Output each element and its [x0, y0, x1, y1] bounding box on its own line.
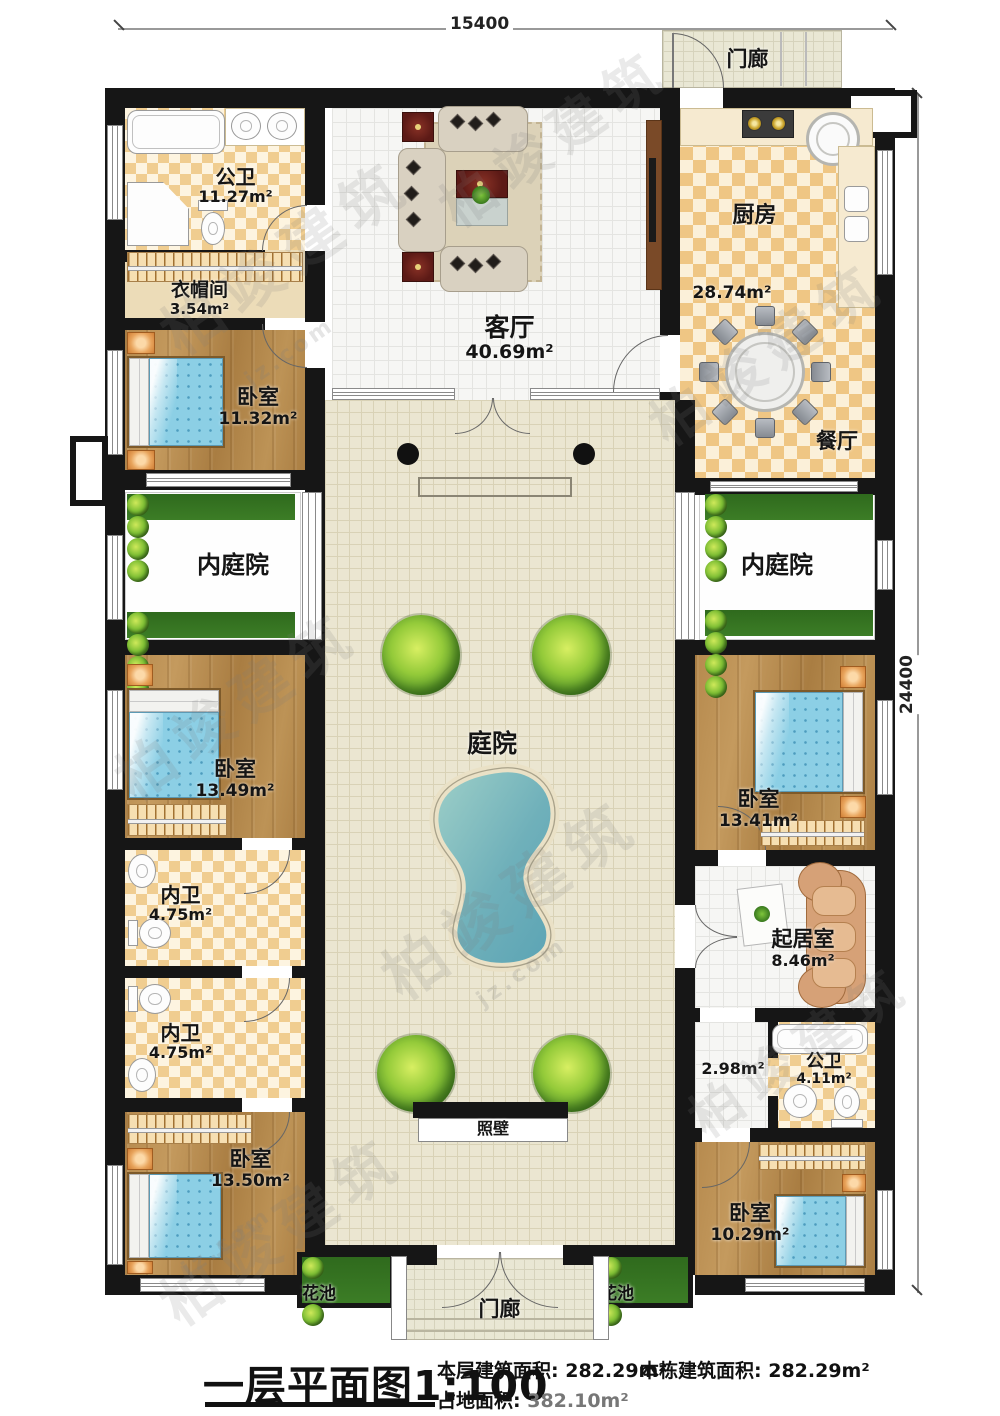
- porch-step-line: [407, 1330, 593, 1332]
- plant-icon: [127, 516, 149, 538]
- room-name: 内卫: [133, 1022, 228, 1044]
- room-label: 门廊: [452, 1298, 547, 1322]
- plant-icon: [705, 610, 727, 632]
- door-leaf: [672, 33, 674, 88]
- dimension-right-label: 24400: [893, 655, 921, 714]
- stat-building-area: 本栋建筑面积: 282.29m²: [640, 1356, 870, 1383]
- chair: [699, 362, 719, 382]
- plant-icon: [127, 612, 149, 634]
- room-name: 客厅: [452, 314, 567, 342]
- tree-icon: [533, 1035, 610, 1112]
- window: [710, 481, 858, 492]
- wardrobe: [127, 1114, 252, 1144]
- room-name: 厨房: [707, 204, 802, 229]
- window: [877, 1190, 893, 1270]
- window: [107, 690, 123, 790]
- room-name: 照壁: [418, 1120, 568, 1138]
- room-name: 公卫: [188, 166, 283, 188]
- room-area: 2.98m²: [698, 1060, 768, 1078]
- door-opening: [242, 838, 292, 850]
- plant-icon: [127, 634, 149, 656]
- window: [140, 1278, 265, 1292]
- toilet-tank: [128, 986, 138, 1012]
- chair: [811, 362, 831, 382]
- chair: [755, 306, 775, 326]
- room-name: 卧室: [700, 1202, 800, 1226]
- room-label: 内卫 4.75m²: [133, 1022, 228, 1062]
- plant-icon: [705, 516, 727, 538]
- sofa: [440, 246, 528, 292]
- toilet: [139, 984, 171, 1014]
- tree-icon: [382, 615, 460, 695]
- room-area: 4.11m²: [778, 1072, 870, 1088]
- plant-icon: [754, 906, 770, 922]
- burner-icon: [771, 116, 786, 131]
- plant-icon: [472, 186, 490, 204]
- room-area: 4.75m²: [133, 1044, 228, 1062]
- stat-label: 占地面积:: [437, 1390, 521, 1412]
- window: [107, 125, 123, 220]
- room-area: 11.27m²: [188, 188, 283, 206]
- room-name: 衣帽间: [152, 280, 247, 301]
- wardrobe: [127, 804, 227, 836]
- plant-icon: [127, 538, 149, 560]
- stat-label: 本栋建筑面积:: [640, 1360, 762, 1382]
- room-label: 门廊: [700, 48, 795, 72]
- room-area: 11.32m²: [208, 410, 308, 429]
- nightstand: [127, 332, 155, 354]
- tree-icon: [377, 1035, 455, 1112]
- room-name: 门廊: [700, 48, 795, 72]
- window: [107, 1165, 123, 1265]
- plant-icon: [705, 632, 727, 654]
- sink: [231, 112, 261, 140]
- toilet: [834, 1086, 860, 1118]
- window: [302, 492, 322, 640]
- nightstand: [127, 1148, 153, 1170]
- room-name: 内卫: [133, 884, 228, 906]
- room-label: 客厅 40.69m²: [452, 314, 567, 363]
- pillows: [129, 358, 149, 446]
- room-label: 卧室 13.41m²: [706, 788, 811, 831]
- room-area: 13.49m²: [185, 782, 285, 801]
- room-name: 餐厅: [792, 430, 882, 454]
- flower-strip: [705, 610, 873, 636]
- room-label: 公卫 11.27m²: [188, 166, 283, 206]
- wall-segment: [125, 640, 305, 655]
- door-opening: [242, 966, 292, 978]
- room-label: 卧室 13.50m²: [198, 1148, 303, 1191]
- sink: [844, 186, 869, 212]
- bathtub: [127, 110, 225, 154]
- sofa: [438, 106, 528, 152]
- flower-bed-label: 花池: [302, 1284, 336, 1304]
- window: [877, 540, 893, 590]
- floor-plan: 15400 24400: [0, 0, 1000, 1416]
- dining-table: [725, 332, 805, 412]
- title-underline: [205, 1402, 435, 1407]
- room-label: 28.74m²: [682, 284, 782, 303]
- room-area: 13.41m²: [706, 812, 811, 831]
- room-area: 4.75m²: [133, 906, 228, 924]
- nightstand: [840, 666, 866, 688]
- door-opening: [675, 905, 695, 968]
- column: [397, 443, 419, 465]
- wall-segment: [105, 88, 680, 108]
- room-name: 卧室: [198, 1148, 303, 1172]
- bathtub: [772, 1024, 868, 1054]
- wardrobe: [758, 1144, 866, 1170]
- dimension-top-label: 15400: [446, 14, 513, 34]
- room-area: 8.46m²: [748, 952, 858, 970]
- porch-column: [593, 1256, 609, 1340]
- porch-divider: [805, 32, 807, 86]
- plant-icon: [127, 560, 149, 582]
- door-opening: [680, 88, 723, 108]
- stat-footprint-area: 占地面积: 382.10m²: [437, 1386, 629, 1413]
- room-name: 卧室: [706, 788, 811, 812]
- wall-segment: [305, 108, 325, 1275]
- room-label: 厨房: [707, 204, 802, 229]
- room-name: 卧室: [208, 386, 308, 410]
- window: [877, 700, 893, 795]
- mattress: [755, 692, 843, 792]
- room-name: 卧室: [185, 758, 285, 782]
- tree-icon: [532, 615, 610, 695]
- flower-bed: 花池: [595, 1252, 693, 1308]
- plant-icon: [705, 494, 727, 516]
- room-label: 卧室 10.29m²: [700, 1202, 800, 1245]
- door-opening: [702, 1128, 750, 1142]
- cushion: [812, 886, 856, 916]
- plant-icon: [705, 654, 727, 676]
- end-table: [402, 112, 434, 142]
- sink: [844, 216, 869, 242]
- room-name: 公卫: [778, 1052, 870, 1072]
- room-name: 门廊: [452, 1298, 547, 1322]
- door-opening: [305, 205, 325, 251]
- room-label: 内庭院: [712, 552, 842, 579]
- wall-segment: [875, 95, 895, 1295]
- window: [877, 150, 893, 275]
- room-area: 3.54m²: [152, 301, 247, 318]
- window-sill: [332, 388, 455, 400]
- window: [107, 350, 123, 455]
- pillows: [843, 692, 863, 792]
- door-opening: [718, 850, 766, 866]
- tv: [649, 158, 656, 242]
- wall-niche: [70, 436, 108, 506]
- door-opening: [305, 322, 325, 368]
- door-opening: [700, 1008, 755, 1022]
- flower-bed: 花池: [297, 1252, 395, 1308]
- room-label: 卧室 11.32m²: [208, 386, 308, 429]
- toilet-tank: [831, 1119, 863, 1128]
- room-label: 2.98m²: [698, 1060, 768, 1078]
- plant-icon: [302, 1257, 324, 1279]
- pond: [420, 762, 580, 972]
- room-label: 餐厅: [792, 430, 882, 454]
- room-label: 衣帽间 3.54m²: [152, 280, 247, 318]
- room-area: 40.69m²: [452, 342, 567, 363]
- nightstand: [127, 1261, 153, 1274]
- sink: [128, 1058, 156, 1092]
- sink: [128, 854, 156, 888]
- room-label: 内卫 4.75m²: [133, 884, 228, 924]
- pillows: [846, 1196, 864, 1266]
- room-name: 起居室: [748, 928, 858, 952]
- room-label: 公卫 4.11m²: [778, 1052, 870, 1088]
- room-label: 内庭院: [168, 552, 298, 579]
- screen-wall-top: [413, 1102, 568, 1118]
- nightstand: [840, 796, 866, 818]
- wall-segment: [768, 1096, 778, 1128]
- pillows: [129, 1174, 149, 1258]
- stat-value: 282.29m²: [768, 1360, 869, 1382]
- plant-icon: [302, 1304, 324, 1326]
- nightstand: [842, 1174, 866, 1192]
- room-label: 起居室 8.46m²: [748, 928, 858, 969]
- room-area: 10.29m²: [700, 1226, 800, 1245]
- room-name: 庭院: [437, 730, 547, 758]
- room-area: 13.50m²: [198, 1172, 303, 1191]
- room-name: 内庭院: [168, 552, 298, 579]
- screen-wall-label: 照壁: [418, 1120, 568, 1138]
- nightstand: [127, 450, 155, 470]
- stat-floor-area: 本层建筑面积: 282.29m²: [437, 1356, 667, 1383]
- sink: [267, 112, 297, 140]
- stat-label: 本层建筑面积:: [437, 1360, 559, 1382]
- porch-column: [391, 1256, 407, 1340]
- sink: [783, 1084, 817, 1118]
- wall-segment: [685, 850, 875, 866]
- flower-strip: [127, 494, 295, 520]
- window: [146, 473, 291, 487]
- room-label: 卧室 13.49m²: [185, 758, 285, 801]
- wardrobe: [127, 252, 303, 282]
- flower-strip: [705, 494, 873, 520]
- chair: [755, 418, 775, 438]
- stat-value: 382.10m²: [527, 1390, 628, 1412]
- plant-icon: [127, 494, 149, 516]
- room-area: 28.74m²: [682, 284, 782, 303]
- sofa: [398, 148, 446, 252]
- room-name: 内庭院: [712, 552, 842, 579]
- flower-strip: [127, 612, 295, 638]
- plant-icon: [705, 676, 727, 698]
- toilet: [201, 212, 225, 245]
- pillows: [129, 690, 219, 712]
- nightstand: [127, 664, 153, 686]
- column: [573, 443, 595, 465]
- end-table: [402, 252, 434, 282]
- window: [675, 492, 695, 640]
- burner-icon: [747, 116, 762, 131]
- wall-segment: [125, 318, 265, 330]
- window: [745, 1278, 865, 1292]
- door-opening: [242, 1098, 292, 1112]
- window: [107, 535, 123, 620]
- step-platform: [418, 477, 572, 497]
- room-label: 庭院: [437, 730, 547, 758]
